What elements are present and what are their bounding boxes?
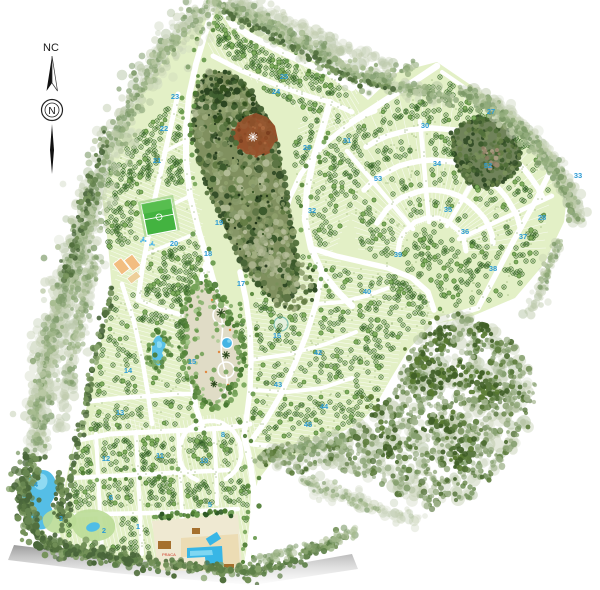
svg-text:PRACA: PRACA xyxy=(162,552,176,557)
